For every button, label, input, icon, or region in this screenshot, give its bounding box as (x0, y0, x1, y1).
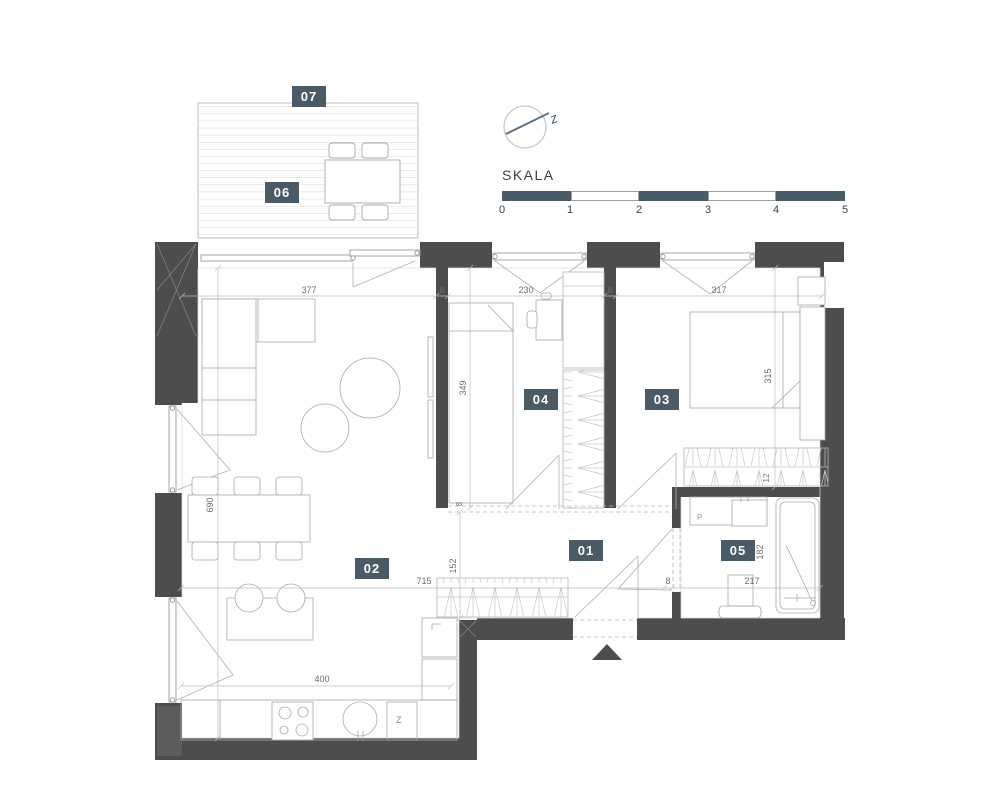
dim-8d: 8 (665, 576, 670, 586)
dim-8a: 8 (439, 285, 444, 295)
wall-shade (157, 706, 182, 756)
dim-690: 690 (205, 497, 215, 512)
scale-seg-1-2 (571, 191, 640, 201)
scale-title: SKALA (502, 167, 555, 183)
dim-400: 400 (314, 674, 329, 684)
scale-tick-5: 5 (842, 204, 848, 216)
compass-north-label: z (547, 109, 560, 127)
dim-715: 715 (416, 576, 431, 586)
dim-317: 317 (711, 285, 726, 295)
dishwasher-label: Z (396, 715, 402, 725)
compass-icon: z (504, 106, 560, 148)
dim-377: 377 (301, 285, 316, 295)
room-badge-05: 05 (721, 540, 755, 561)
living-room-furniture (188, 299, 433, 640)
room-badge-06: 06 (265, 182, 299, 203)
dim-12: 12 (762, 473, 771, 482)
room-badge-07: 07 (292, 86, 326, 107)
scale-tick-1: 1 (567, 204, 573, 216)
terrace (198, 103, 418, 238)
scale-tick-4: 4 (773, 204, 779, 216)
entrance-arrow (592, 644, 622, 660)
room-03-furniture (690, 277, 825, 440)
scale-seg-2-3 (639, 191, 708, 201)
floor-plan-drawing: 377 8 230 8 317 349 315 690 12 152 182 8… (0, 0, 1000, 787)
room-badge-01: 01 (569, 540, 603, 561)
scale-bar (502, 191, 845, 201)
dim-230: 230 (518, 285, 533, 295)
dim-8c: 8 (455, 501, 464, 506)
room-badge-04: 04 (524, 389, 558, 410)
scale-seg-0-1 (502, 191, 571, 201)
dim-8b: 8 (607, 285, 612, 295)
washer-label: P (697, 513, 702, 522)
dim-315: 315 (763, 368, 773, 383)
room-badge-02: 02 (355, 558, 389, 579)
dim-349: 349 (458, 380, 468, 395)
dim-152: 152 (448, 558, 458, 573)
scale-tick-3: 3 (705, 204, 711, 216)
dim-217: 217 (744, 576, 759, 586)
scale-seg-4-5 (776, 191, 845, 201)
floor-plan-page: 377 8 230 8 317 349 315 690 12 152 182 8… (0, 0, 1000, 787)
scale-tick-0: 0 (499, 204, 505, 216)
scale-seg-3-4 (708, 191, 777, 201)
room-badge-03: 03 (645, 389, 679, 410)
dim-182: 182 (755, 544, 765, 559)
scale-tick-2: 2 (636, 204, 642, 216)
